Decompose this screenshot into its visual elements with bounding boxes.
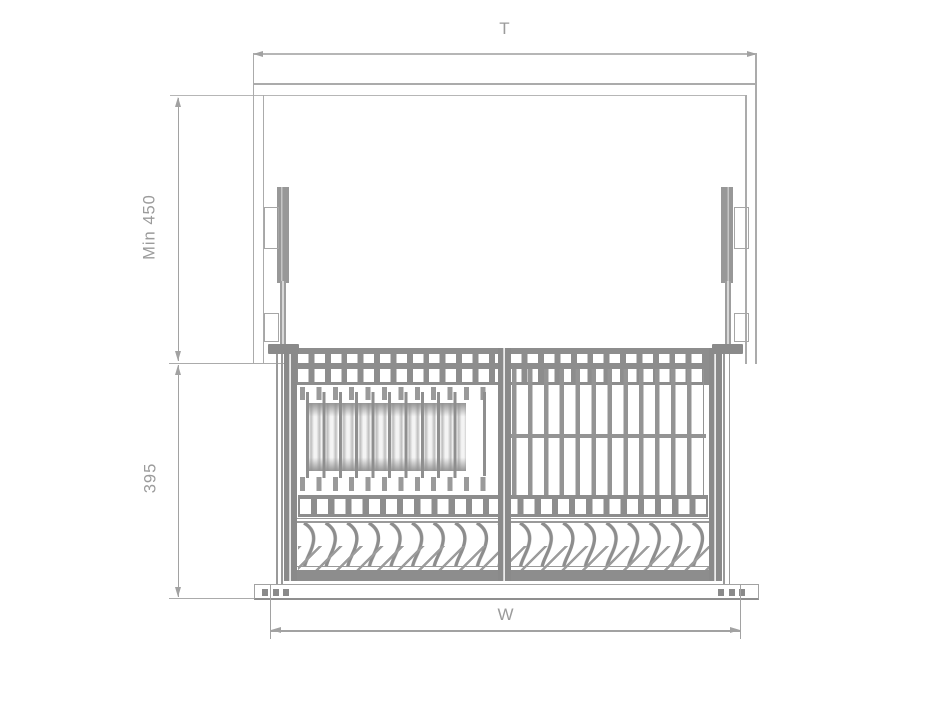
tray-runner-tick xyxy=(273,589,279,597)
wire-grid-mid-rail xyxy=(510,434,706,439)
tray-runner-tick xyxy=(262,589,268,597)
wire-grid-vertical-wires xyxy=(512,369,704,496)
dim-lower-arrow-top xyxy=(175,365,181,375)
dim-upper-arrow-top xyxy=(175,97,181,107)
rack-right-upright xyxy=(709,348,722,581)
left-bracket-lower-rail xyxy=(280,281,287,345)
rack-left-frame-line-outer xyxy=(276,352,278,584)
right-bracket-mount-upper xyxy=(734,207,750,249)
left-bracket-mount-upper xyxy=(264,207,280,249)
right-bracket-lower-rail xyxy=(725,281,732,345)
extension-line-mid xyxy=(169,363,286,364)
rack-right-frame-line-inner xyxy=(723,352,725,584)
dim-upper-arrow-bottom xyxy=(175,351,181,361)
right-bracket-mount-lower xyxy=(734,313,750,342)
right-bracket-bar xyxy=(721,187,733,283)
dim-lower-arrow-bottom xyxy=(175,587,181,597)
extension-line-bottom xyxy=(169,598,257,599)
dim-bottom-arrow-left xyxy=(271,627,281,633)
plate-rack-bottom-holders xyxy=(300,477,486,491)
cabinet-inner-top-edge xyxy=(170,95,747,96)
right-bracket-foot xyxy=(712,344,743,355)
dim-bottom-ext-right xyxy=(740,584,741,639)
dim-bottom-line xyxy=(271,630,740,632)
dim-top-line xyxy=(253,53,757,55)
dim-upper-height-line xyxy=(178,98,179,361)
dim-top-label: T xyxy=(478,19,532,39)
rack-right-frame-line-outer xyxy=(729,352,731,584)
dimension-drawing: T Min 450 395 xyxy=(0,0,943,706)
tray-runner-tick xyxy=(718,589,724,597)
drip-tray xyxy=(254,584,759,600)
dim-upper-height-label: Min 450 xyxy=(141,194,160,260)
dim-bottom-arrow-right xyxy=(730,627,740,633)
left-bracket-mount-lower xyxy=(264,313,280,342)
rack-left-frame-line-inner xyxy=(281,352,283,584)
dim-lower-height-label: 395 xyxy=(142,463,161,494)
cabinet-top-panel-bottom-edge xyxy=(253,83,757,85)
rack-left-upright xyxy=(284,348,297,581)
dim-top-arrow-left xyxy=(253,51,263,57)
plate-rack-end-wire xyxy=(483,392,486,476)
rack-center-divider xyxy=(498,348,511,581)
cabinet-right-wall-outer xyxy=(755,53,757,364)
plate-rack-plates xyxy=(307,403,466,471)
left-bracket-foot xyxy=(268,344,299,355)
tray-runner-tick xyxy=(283,589,289,597)
cabinet-left-wall-outer xyxy=(253,53,255,364)
dim-bottom-label: W xyxy=(479,605,533,625)
dim-lower-height-line xyxy=(178,365,179,597)
tray-runner-tick xyxy=(729,589,735,597)
